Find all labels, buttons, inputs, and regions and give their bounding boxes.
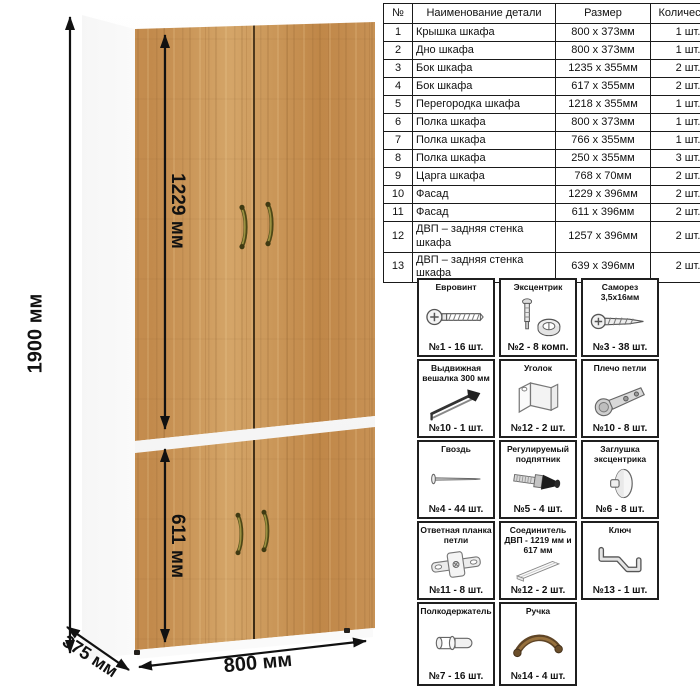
hardware-item-excentric: Эксцентрик №2 - 8 комп. <box>499 278 577 357</box>
lower-facade-dimension-label: 611 мм <box>166 496 188 596</box>
hinge-plate-icon <box>420 545 492 584</box>
parts-table: № Наименование детали Размер Количество … <box>383 3 700 283</box>
table-row: 11Фасад611 х 396мм2 шт. <box>384 204 700 222</box>
table-row: 3Бок шкафа1235 х 355мм2 шт. <box>384 60 700 78</box>
col-header-number: № <box>384 4 413 24</box>
table-row: 5Перегородка шкафа1218 х 355мм1 шт. <box>384 96 700 114</box>
table-row: 12ДВП – задняя стенка шкафа1257 х 396мм2… <box>384 222 700 253</box>
hdf-connector-icon <box>502 555 574 584</box>
table-row: 8Полка шкафа250 х 355мм3 шт. <box>384 150 700 168</box>
euro-screw-icon <box>420 292 492 341</box>
hardware-item-shelf-pin: Полкодержатель №7 - 16 шт. <box>417 602 495 686</box>
cam-cap-icon <box>584 464 656 503</box>
hardware-item-nail: Гвоздь №4 - 44 шт. <box>417 440 495 519</box>
door-handle <box>262 201 274 247</box>
table-row: 7Полка шкафа766 х 355мм1 шт. <box>384 132 700 150</box>
hardware-item-eurovint: Евровинт №1 - 16 шт. <box>417 278 495 357</box>
col-header-size: Размер <box>556 4 651 24</box>
hardware-item-hinge-arm: Плечо петли №10 - 8 шт. <box>581 359 659 438</box>
handle-icon <box>502 616 574 670</box>
nail-icon <box>420 454 492 503</box>
hinge-arm-icon <box>584 373 656 422</box>
table-row: 6Полка шкафа800 х 373мм1 шт. <box>384 114 700 132</box>
cabinet-foot <box>134 650 140 655</box>
wardrobe-illustration: 1900 мм 1229 мм 611 мм 800 мм 375 мм <box>0 0 420 700</box>
door-handle <box>232 512 244 556</box>
hardware-item-hinge-plate: Ответная планка петли №11 - 8 шт. <box>417 521 495 600</box>
hardware-item-samorez: Саморез 3,5х16мм №3 - 38 шт. <box>581 278 659 357</box>
hardware-item-hdf-connector: Соединитель ДВП - 1219 мм и 617 мм №12 -… <box>499 521 577 600</box>
hardware-grid: Евровинт №1 - 16 шт. Эксцентрик №2 - 8 к… <box>417 278 663 686</box>
table-row: 4Бок шкафа617 х 355мм2 шт. <box>384 78 700 96</box>
pull-out-hanger-icon <box>420 383 492 422</box>
hex-key-icon <box>584 535 656 584</box>
upper-facade-dimension-label: 1229 мм <box>166 151 188 271</box>
hardware-item-foot: Регулируемый подпятник №5 - 4 шт. <box>499 440 577 519</box>
corner-bracket-icon <box>502 373 574 422</box>
door-handle <box>236 204 248 250</box>
cam-lock-icon <box>502 292 574 341</box>
cabinet-foot <box>344 628 350 633</box>
hardware-item-ugolok: Уголок №12 - 2 шт. <box>499 359 577 438</box>
assembly-sheet: 1900 мм 1229 мм 611 мм 800 мм 375 мм № Н… <box>0 0 700 700</box>
table-row: 1Крышка шкафа800 х 373мм1 шт. <box>384 24 700 42</box>
shelf-pin-icon <box>420 616 492 670</box>
hardware-item-handle: Ручка №14 - 4 шт. <box>499 602 577 686</box>
hardware-item-cam-cap: Заглушка эксцентрика №6 - 8 шт. <box>581 440 659 519</box>
adjustable-foot-icon <box>502 464 574 503</box>
col-header-name: Наименование детали <box>413 4 556 24</box>
table-row: 10Фасад1229 х 396мм2 шт. <box>384 186 700 204</box>
height-dimension-label: 1900 мм <box>25 274 48 394</box>
hardware-item-hanger: Выдвижная вешалка 300 мм №10 - 1 шт. <box>417 359 495 438</box>
parts-table-header-row: № Наименование детали Размер Количество <box>384 4 700 24</box>
hardware-grid-empty-cell <box>581 602 659 686</box>
door-handle <box>258 509 270 553</box>
self-tapping-screw-icon <box>584 302 656 341</box>
hardware-item-key: Ключ №13 - 1 шт. <box>581 521 659 600</box>
col-header-qty: Количество <box>651 4 700 24</box>
table-row: 9Царга шкафа768 х 70мм2 шт. <box>384 168 700 186</box>
table-row: 2Дно шкафа800 х 373мм1 шт. <box>384 42 700 60</box>
